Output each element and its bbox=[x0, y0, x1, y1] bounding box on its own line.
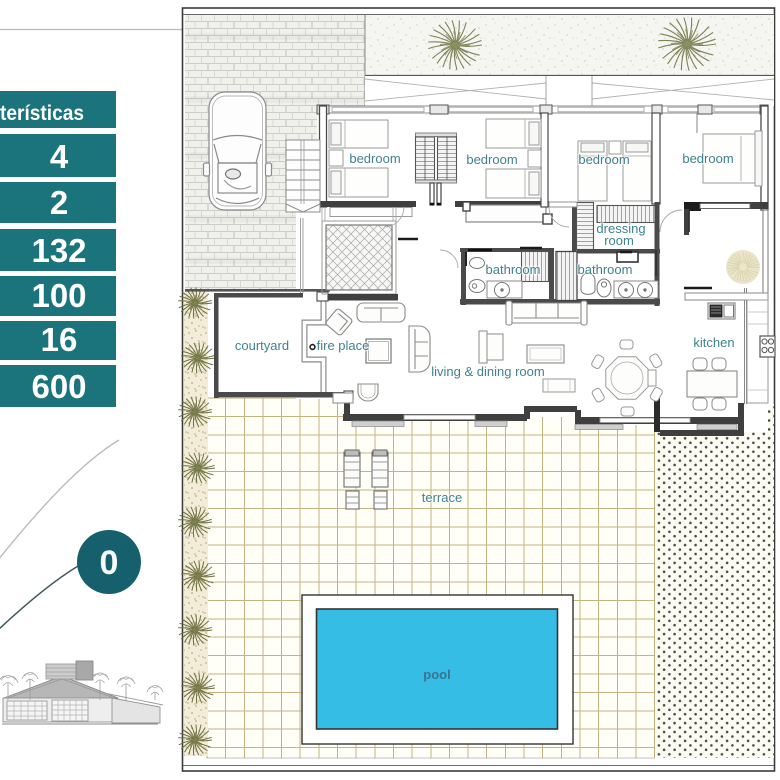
svg-text:bedroom: bedroom bbox=[466, 152, 517, 167]
svg-text:room: room bbox=[604, 233, 634, 248]
svg-text:terrace: terrace bbox=[422, 490, 462, 505]
svg-text:100: 100 bbox=[31, 277, 86, 314]
svg-text:0: 0 bbox=[100, 544, 119, 582]
svg-text:living & dining room: living & dining room bbox=[431, 364, 544, 379]
svg-text:bedroom: bedroom bbox=[682, 151, 733, 166]
svg-text:4: 4 bbox=[50, 138, 69, 175]
svg-text:bathroom: bathroom bbox=[578, 262, 633, 277]
svg-text:2: 2 bbox=[50, 184, 68, 221]
svg-text:bedroom: bedroom bbox=[578, 152, 629, 167]
svg-text:132: 132 bbox=[31, 232, 86, 269]
svg-text:fire place: fire place bbox=[317, 338, 370, 353]
svg-text:bedroom: bedroom bbox=[349, 151, 400, 166]
svg-text:bathroom: bathroom bbox=[486, 262, 541, 277]
svg-text:16: 16 bbox=[41, 321, 78, 358]
svg-text:kitchen: kitchen bbox=[693, 335, 734, 350]
svg-text:terísticas: terísticas bbox=[0, 102, 84, 125]
svg-text:pool: pool bbox=[423, 667, 450, 682]
svg-text:courtyard: courtyard bbox=[235, 338, 289, 353]
svg-text:600: 600 bbox=[31, 368, 86, 405]
